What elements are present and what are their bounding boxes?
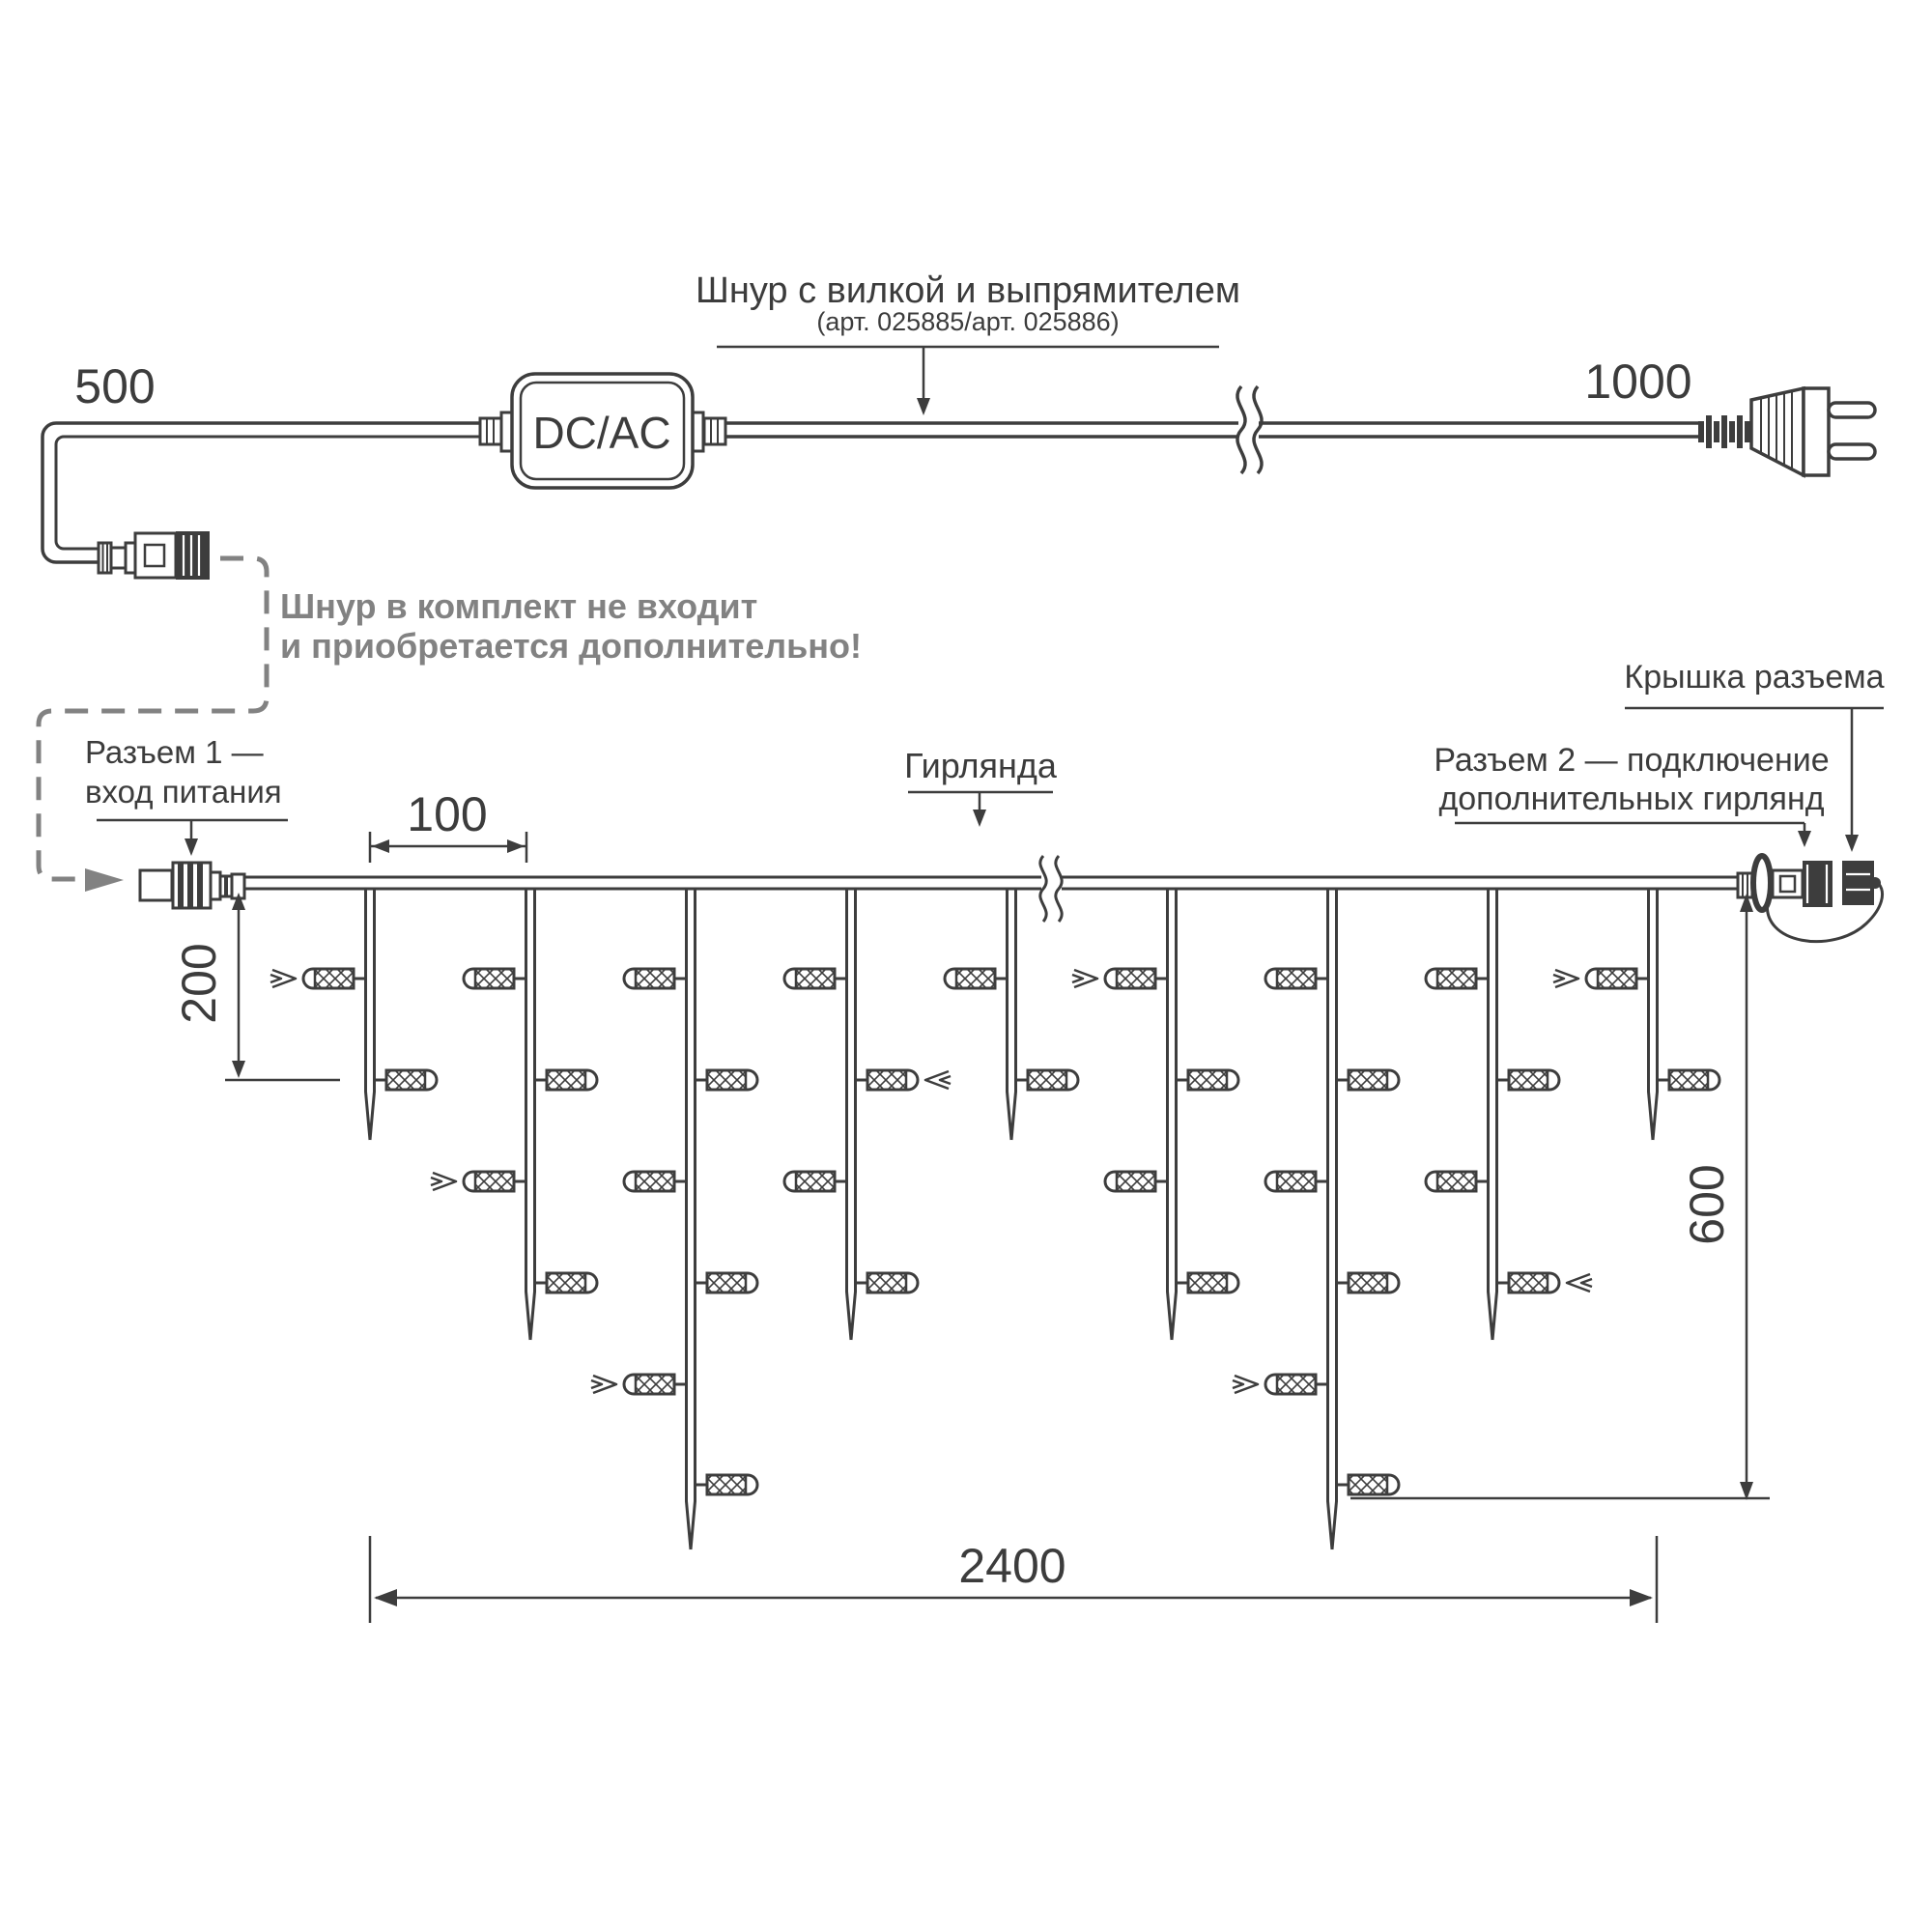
garland-label: Гирлянда [904,746,1058,785]
direction-marker-icon [1567,1274,1590,1292]
plug-pin [1829,403,1875,417]
garland-drop [1072,889,1238,1340]
direction-marker-icon [925,1071,949,1089]
cable-joint-right [704,418,725,444]
wire-break-mark [1040,856,1062,922]
direction-marker-icon [1235,1376,1258,1393]
led-bulb [270,969,366,988]
cap-label: Крышка разъема [1624,659,1884,696]
led-bulb [624,1172,687,1191]
diagram-root: DC/AC [0,0,1932,1932]
direction-marker-icon [1555,970,1578,987]
led-bulb [1426,969,1489,988]
led-bulb [1016,1070,1079,1090]
garland-drop [431,889,597,1340]
connector-cap [1842,861,1881,905]
dim-1000: 1000 [1584,355,1691,409]
arrow-down-icon [973,810,986,827]
dim-2400-value: 2400 [958,1539,1065,1593]
plug-cable [725,423,1698,437]
led-bulb [784,969,847,988]
led-bulb [1265,969,1328,988]
led-bulb [856,1070,952,1090]
dc-ac-label: DC/AC [532,408,670,458]
cord-callout: Шнур с вилкой и выпрямителем (арт. 02588… [696,270,1240,415]
led-bulb [1497,1273,1593,1293]
led-bulb [1072,969,1168,988]
garland-callout: Гирлянда [904,746,1058,827]
direction-marker-icon [1074,970,1097,987]
connector1-callout: Разъем 1 — вход питания [85,734,288,856]
led-bulb [1177,1273,1239,1293]
direction-marker-icon [433,1173,456,1190]
adapter-output-connector [99,531,210,580]
garland-drops [270,889,1719,1549]
led-bulb [1553,969,1649,988]
led-bulb [431,1172,526,1191]
led-bulb [464,969,526,988]
garland-drop [270,889,437,1140]
garland-input-connector [140,863,244,908]
arrow-down-icon [1798,831,1811,847]
garland-drop [784,889,951,1340]
led-bulb [1497,1070,1560,1090]
garland-wire [243,856,1738,922]
arrow-down-icon [917,398,930,415]
garland-drop [591,889,757,1549]
power-plug [1698,388,1875,475]
dim-100: 100 [370,787,526,863]
led-bulb [1426,1172,1489,1191]
led-bulb [535,1070,598,1090]
dim-100-value: 100 [407,787,487,841]
led-bulb [1233,1375,1328,1394]
connector2-label-line1: Разъем 2 — подключение [1434,742,1829,779]
dim-200-value: 200 [172,943,226,1023]
led-bulb [1658,1070,1720,1090]
garland-drop [1233,889,1399,1549]
dim-2400: 2400 [370,1536,1657,1623]
led-bulb [375,1070,438,1090]
led-bulb [591,1375,687,1394]
led-bulb [784,1172,847,1191]
connector2-label-line2: дополнительных гирлянд [1438,781,1824,817]
gray-arrow-right-icon [85,868,124,892]
dim-600-value: 600 [1680,1164,1734,1244]
garland-drop [1553,889,1719,1140]
arrow-down-icon [185,838,198,856]
direction-marker-icon [593,1376,616,1393]
note-line2: и приобретается дополнительно! [280,626,862,666]
diagram-canvas: DC/AC [0,0,1932,1932]
led-bulb [1337,1475,1400,1494]
led-bulb [1337,1070,1400,1090]
led-bulb [945,969,1008,988]
adapter-cable-loop [43,423,483,562]
cable-joint-left [480,418,501,444]
dim-500: 500 [74,359,155,413]
garland-drop [945,889,1078,1140]
led-bulb [535,1273,598,1293]
led-bulb [1177,1070,1239,1090]
led-bulb [696,1273,758,1293]
note-line1: Шнур в комплект не входит [280,586,757,626]
cord-title: Шнур с вилкой и выпрямителем [696,270,1240,311]
connector2-callout: Разъем 2 — подключение дополнительных ги… [1434,742,1829,847]
connector1-label-line2: вход питания [85,774,282,810]
led-bulb [624,969,687,988]
led-bulb [856,1273,919,1293]
sealing-ring [1753,856,1771,910]
direction-marker-icon [272,970,296,987]
garland-drop [1426,889,1592,1340]
led-bulb [696,1070,758,1090]
arrow-down-icon [1845,835,1859,852]
optional-cord-path [39,558,267,892]
cable-break-mark [1237,386,1262,473]
connector1-label-line1: Разъем 1 — [85,734,264,770]
dc-ac-converter: DC/AC [480,374,725,488]
led-bulb [1265,1172,1328,1191]
led-bulb [696,1475,758,1494]
plug-pin [1829,444,1875,459]
cord-subtitle: (арт. 025885/арт. 025886) [816,307,1119,336]
garland-end-connector [1738,856,1883,942]
led-bulb [1105,1172,1168,1191]
led-bulb [1337,1273,1400,1293]
